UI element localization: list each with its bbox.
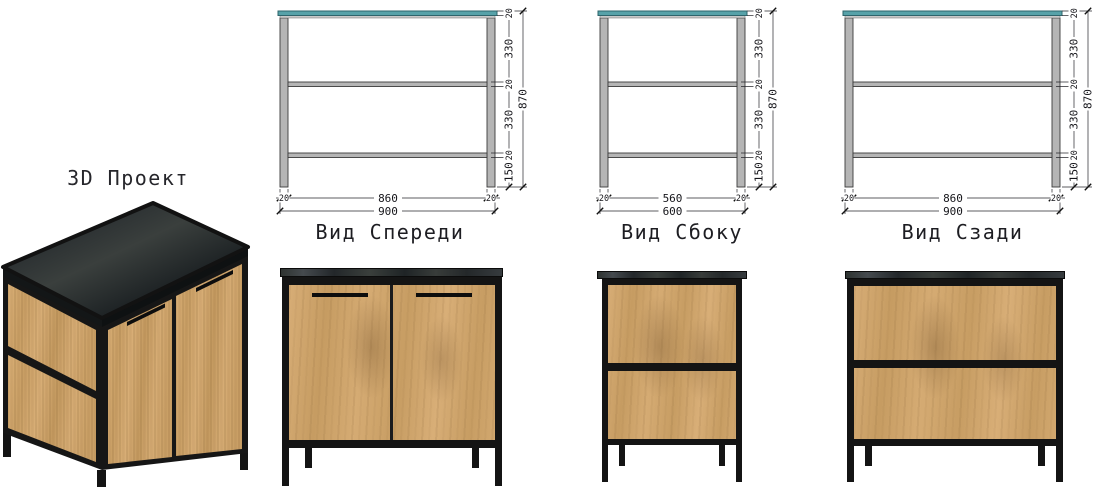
dim-mid-rail: 20 bbox=[505, 79, 515, 89]
tabletop-slab bbox=[597, 271, 747, 279]
middle-rail bbox=[288, 82, 487, 87]
middle-rail bbox=[853, 82, 1052, 87]
leg bbox=[282, 448, 289, 486]
dim-upper-gap: 330 bbox=[753, 39, 766, 59]
side-render bbox=[597, 267, 747, 488]
leg bbox=[1038, 446, 1045, 466]
dim-bottom-rail: 20 bbox=[1070, 150, 1080, 160]
leg bbox=[305, 448, 312, 468]
dim-lower-gap: 330 bbox=[503, 110, 516, 130]
right-post bbox=[1052, 18, 1060, 187]
dim-right-offset: 20 bbox=[736, 194, 746, 204]
back-view-drawing: 20 330 20 330 20 150 870 20 860 20 900 bbox=[841, 2, 1100, 218]
leg bbox=[619, 445, 625, 466]
right-door-handle bbox=[416, 293, 472, 297]
dim-outer-width: 900 bbox=[378, 205, 398, 218]
left-post bbox=[845, 18, 853, 187]
dim-lower-gap: 330 bbox=[753, 110, 766, 130]
cabinet-side-body bbox=[602, 279, 742, 445]
dim-inner-width: 860 bbox=[943, 192, 963, 205]
dim-upper-gap: 330 bbox=[503, 39, 516, 59]
leg bbox=[1056, 446, 1063, 482]
tabletop-bar bbox=[598, 11, 747, 16]
dim-right-offset: 20 bbox=[1051, 194, 1061, 204]
dim-leg-height: 150 bbox=[503, 162, 516, 182]
cabinet-back-body bbox=[847, 279, 1063, 446]
door-gap bbox=[390, 285, 393, 440]
left-door-handle bbox=[312, 293, 368, 297]
dim-bottom-rail: 20 bbox=[505, 150, 515, 160]
middle-rail bbox=[608, 363, 736, 371]
leg bbox=[736, 445, 742, 482]
back-render bbox=[845, 266, 1065, 488]
dim-inner-width: 860 bbox=[378, 192, 398, 205]
cabinet-body bbox=[282, 277, 502, 448]
front-view-title: Вид Спереди bbox=[276, 220, 504, 244]
dim-leg-height: 150 bbox=[753, 162, 766, 182]
middle-rail bbox=[608, 82, 737, 87]
leg bbox=[847, 446, 854, 482]
tabletop-bar bbox=[843, 11, 1062, 16]
tabletop-slab bbox=[280, 268, 503, 277]
dim-total-height: 870 bbox=[767, 89, 780, 109]
bottom-rail bbox=[288, 153, 487, 158]
right-post bbox=[487, 18, 495, 187]
leg bbox=[865, 446, 872, 466]
dim-total-height: 870 bbox=[1082, 89, 1095, 109]
extension-lines bbox=[596, 11, 777, 214]
middle-rail bbox=[854, 360, 1056, 368]
dim-lower-gap: 330 bbox=[1068, 110, 1081, 130]
dimension-ticks bbox=[597, 8, 776, 214]
front-view-drawing: 20 330 20 330 20 150 870 20 860 20 900 bbox=[276, 2, 538, 218]
side-view-drawing: 20 330 20 330 20 150 870 20 560 20 600 bbox=[594, 2, 784, 218]
cabinet-3d-render bbox=[0, 195, 265, 488]
dim-left-offset: 20 bbox=[599, 194, 609, 204]
back-view-title: Вид Сзади bbox=[845, 220, 1080, 244]
project-title: 3D Проект bbox=[28, 166, 228, 190]
dim-outer-width: 900 bbox=[943, 205, 963, 218]
leg bbox=[495, 448, 502, 486]
dim-top-thickness: 20 bbox=[1070, 8, 1080, 18]
dim-left-offset: 20 bbox=[279, 194, 289, 204]
drawing-sheet: 3D Проект bbox=[0, 0, 1100, 488]
dim-leg-height: 150 bbox=[1068, 162, 1081, 182]
bottom-rail bbox=[608, 153, 737, 158]
leg bbox=[472, 448, 479, 468]
left-post bbox=[280, 18, 288, 187]
leg bbox=[719, 445, 725, 466]
dim-mid-rail: 20 bbox=[755, 79, 765, 89]
leg bbox=[602, 445, 608, 482]
tabletop-bar bbox=[278, 11, 497, 16]
tabletop-slab bbox=[845, 271, 1065, 279]
dim-mid-rail: 20 bbox=[1070, 79, 1080, 89]
right-post bbox=[737, 18, 745, 187]
dim-top-thickness: 20 bbox=[505, 8, 515, 18]
front-render bbox=[280, 265, 504, 488]
dim-total-height: 870 bbox=[517, 89, 530, 109]
dim-left-offset: 20 bbox=[844, 194, 854, 204]
dim-outer-depth: 600 bbox=[663, 205, 683, 218]
bottom-rail bbox=[853, 153, 1052, 158]
dim-right-offset: 20 bbox=[486, 194, 496, 204]
dim-inner-depth: 560 bbox=[663, 192, 683, 205]
dim-top-thickness: 20 bbox=[755, 8, 765, 18]
dim-upper-gap: 330 bbox=[1068, 39, 1081, 59]
left-post bbox=[600, 18, 608, 187]
dim-bottom-rail: 20 bbox=[755, 150, 765, 160]
side-view-title: Вид Сбоку bbox=[596, 220, 768, 244]
